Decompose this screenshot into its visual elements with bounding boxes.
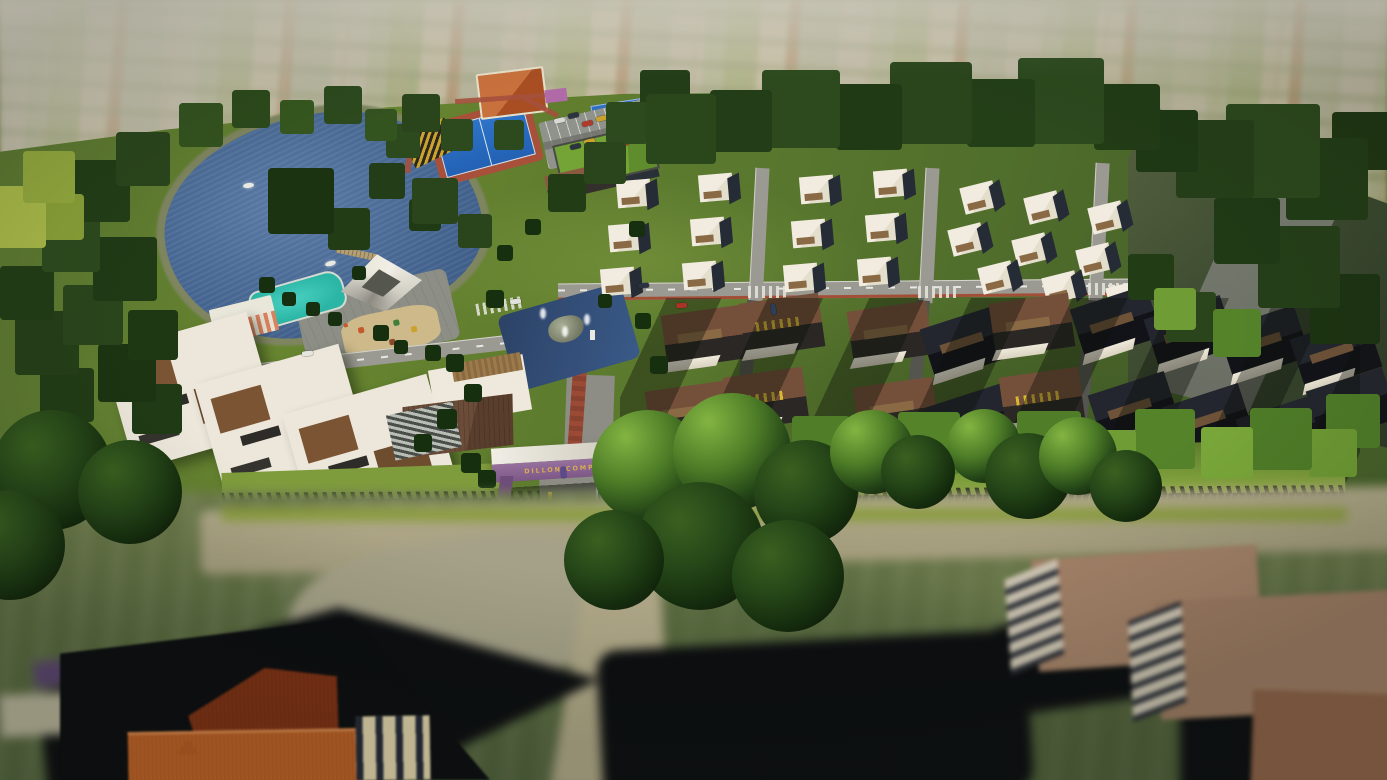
- aerial-render-scene: DILLON COMPLEX: [0, 0, 1387, 780]
- vignette-overlay: [0, 0, 1387, 780]
